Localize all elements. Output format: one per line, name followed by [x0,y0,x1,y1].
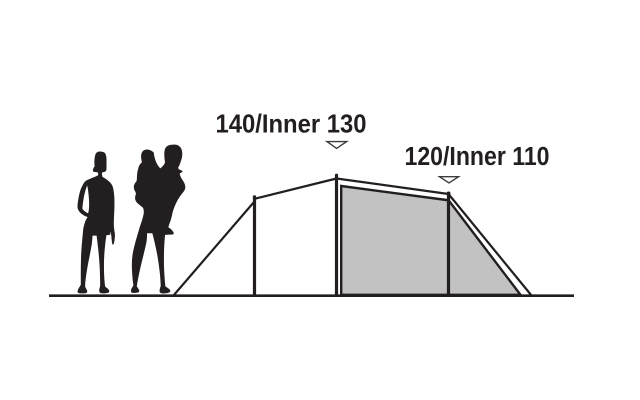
svg-text:140/Inner 130: 140/Inner 130 [216,108,367,138]
svg-text:120/Inner 110: 120/Inner 110 [405,143,550,171]
